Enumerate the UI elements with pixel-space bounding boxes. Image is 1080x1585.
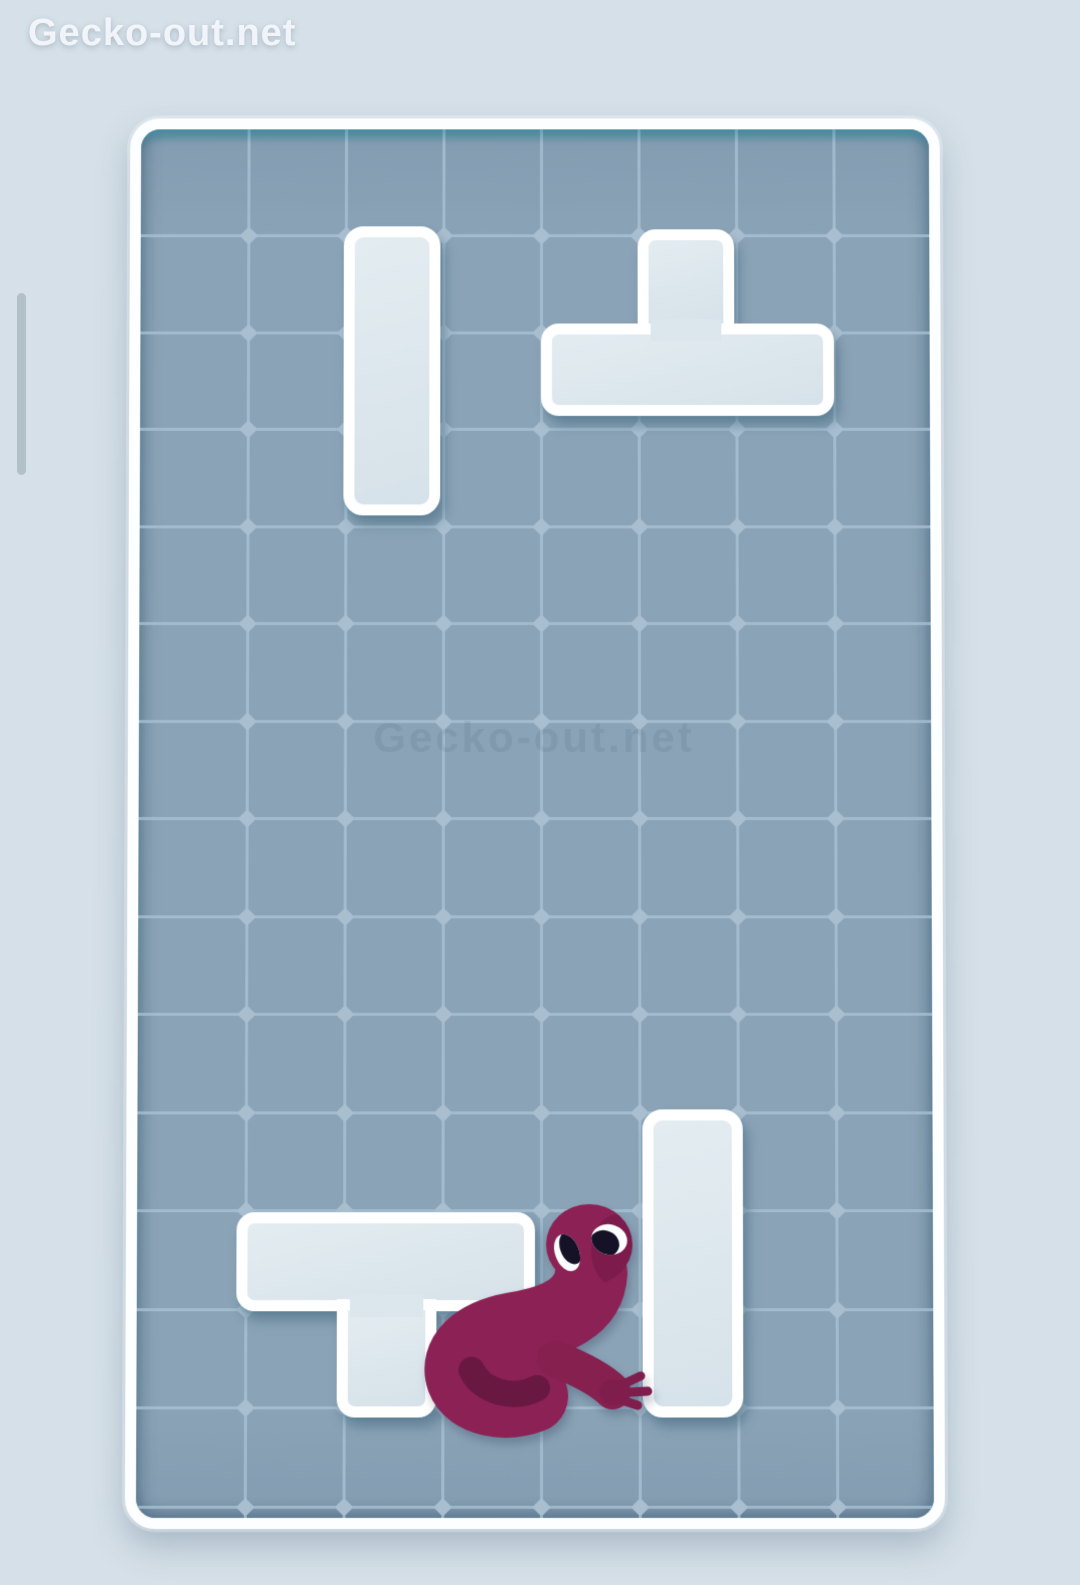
board-perspective-wrap: Gecko-out.net [0,5,1080,1585]
page-background: { "site": { "title": "Gecko-out.net" }, … [0,0,1080,1578]
gecko-character[interactable] [136,129,934,1518]
puzzle-board: Gecko-out.net [125,118,945,1529]
board-surface: Gecko-out.net [136,129,934,1518]
